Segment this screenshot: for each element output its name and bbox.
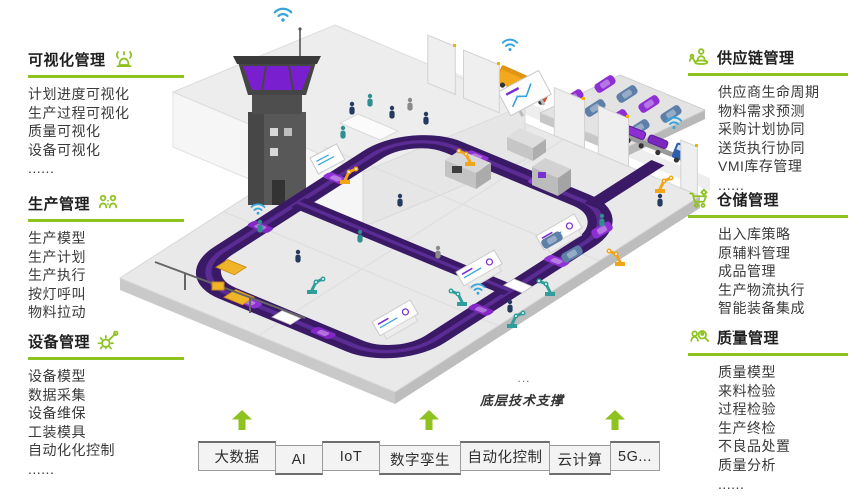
up-arrow-icon [603,408,627,432]
tech-chip-big-data: 大数据 [198,441,276,471]
section-underline [688,73,848,76]
tech-chip-cloud: 云计算 [549,445,611,475]
section-underline [28,357,184,360]
section-item: 生产模型 [28,229,184,248]
section-item: 工装模具 [28,423,184,442]
section-title: 仓储管理 [717,189,779,210]
ellipsis-dots: ... [504,371,544,385]
section-item-list: 生产模型 生产计划 生产执行 按灯呼叫 物料拉动 ...... [28,229,184,341]
section-item: 按灯呼叫 [28,285,184,304]
section-item: 数据采集 [28,386,184,405]
tech-chip-5g: 5G... [610,441,660,471]
section-warehouse-management: 仓储管理 出入库策略 原辅料管理 成品管理 生产物流执行 智能装备集成 ....… [688,188,848,337]
section-item: ...... [28,460,184,479]
section-item: 生产过程可视化 [28,104,184,123]
supplier-icon [688,46,710,68]
section-item: 生产计划 [28,248,184,267]
section-title: 可视化管理 [28,49,106,70]
wifi-signal [275,9,291,22]
section-item: 设备模型 [28,367,184,386]
section-underline [28,75,184,78]
team-icon [97,192,119,214]
tech-chip-automation: 自动化控制 [460,441,550,471]
section-underline [688,353,848,356]
up-arrow-icon [417,408,441,432]
tech-chip-iot: IoT [322,441,380,471]
up-arrow-icon [230,408,254,432]
section-item: 自动化化控制 [28,441,184,460]
section-item: 物料需求预测 [718,102,848,121]
section-item: 不良品处置 [718,437,848,456]
section-item-list: 供应商生命周期 物料需求预测 采购计划协同 送货执行协同 VMI库存管理 ...… [688,83,848,195]
beacon-icon [113,48,135,70]
section-underline [28,219,184,222]
section-item: 采购计划协同 [718,120,848,139]
section-item: 质量可视化 [28,122,184,141]
section-visualization-management: 可视化管理 计划进度可视化 生产过程可视化 质量可视化 设备可视化 ...... [28,48,184,178]
section-item: 计划进度可视化 [28,85,184,104]
technology-bar: 大数据 AI IoT 数字孪生 自动化控制 云计算 5G... [198,443,660,473]
section-title: 质量管理 [717,327,779,348]
section-item: 原辅料管理 [718,244,848,263]
gear-wrench-icon [97,330,119,352]
section-underline [688,215,848,218]
section-item: 质量模型 [718,363,848,382]
section-quality-management: 质量管理 质量模型 来料检验 过程检验 生产终检 不良品处置 质量分析 ....… [688,326,848,493]
cart-icon [688,188,710,210]
tech-chip-ai: AI [275,445,323,475]
section-item: ...... [28,159,184,178]
inspection-icon [688,326,710,348]
section-item: 智能装备集成 [718,299,848,318]
section-item: 过程检验 [718,400,848,419]
smart-factory-diagram: 可视化管理 计划进度可视化 生产过程可视化 质量可视化 设备可视化 ......… [0,0,867,499]
section-item-list: 出入库策略 原辅料管理 成品管理 生产物流执行 智能装备集成 ...... [688,225,848,337]
section-item-list: 质量模型 来料检验 过程检验 生产终检 不良品处置 质量分析 ...... [688,363,848,493]
tech-chip-digital-twin: 数字孪生 [379,445,461,475]
section-item: 质量分析 [718,456,848,475]
section-item: 物料拉动 [28,303,184,322]
section-item: ...... [718,475,848,494]
section-item: 生产执行 [28,266,184,285]
tech-support-caption: 底层技术支撑 [462,390,582,409]
section-item: 生产物流执行 [718,281,848,300]
section-title: 生产管理 [28,193,90,214]
section-item: 出入库策略 [718,225,848,244]
section-title: 供应链管理 [717,47,795,68]
section-item: 供应商生命周期 [718,83,848,102]
section-item: 来料检验 [718,382,848,401]
section-item: VMI库存管理 [718,157,848,176]
section-item: 送货执行协同 [718,139,848,158]
section-item: 成品管理 [718,262,848,281]
factory-illustration [100,0,715,420]
section-item: 设备可视化 [28,141,184,160]
section-item: 设备维保 [28,404,184,423]
section-item-list: 计划进度可视化 生产过程可视化 质量可视化 设备可视化 ...... [28,85,184,178]
section-production-management: 生产管理 生产模型 生产计划 生产执行 按灯呼叫 物料拉动 ...... [28,192,184,341]
section-item-list: 设备模型 数据采集 设备维保 工装模具 自动化化控制 ...... [28,367,184,479]
section-equipment-management: 设备管理 设备模型 数据采集 设备维保 工装模具 自动化化控制 ...... [28,330,184,479]
section-title: 设备管理 [28,331,90,352]
section-supply-chain-management: 供应链管理 供应商生命周期 物料需求预测 采购计划协同 送货执行协同 VMI库存… [688,46,848,195]
section-item: 生产终检 [718,419,848,438]
